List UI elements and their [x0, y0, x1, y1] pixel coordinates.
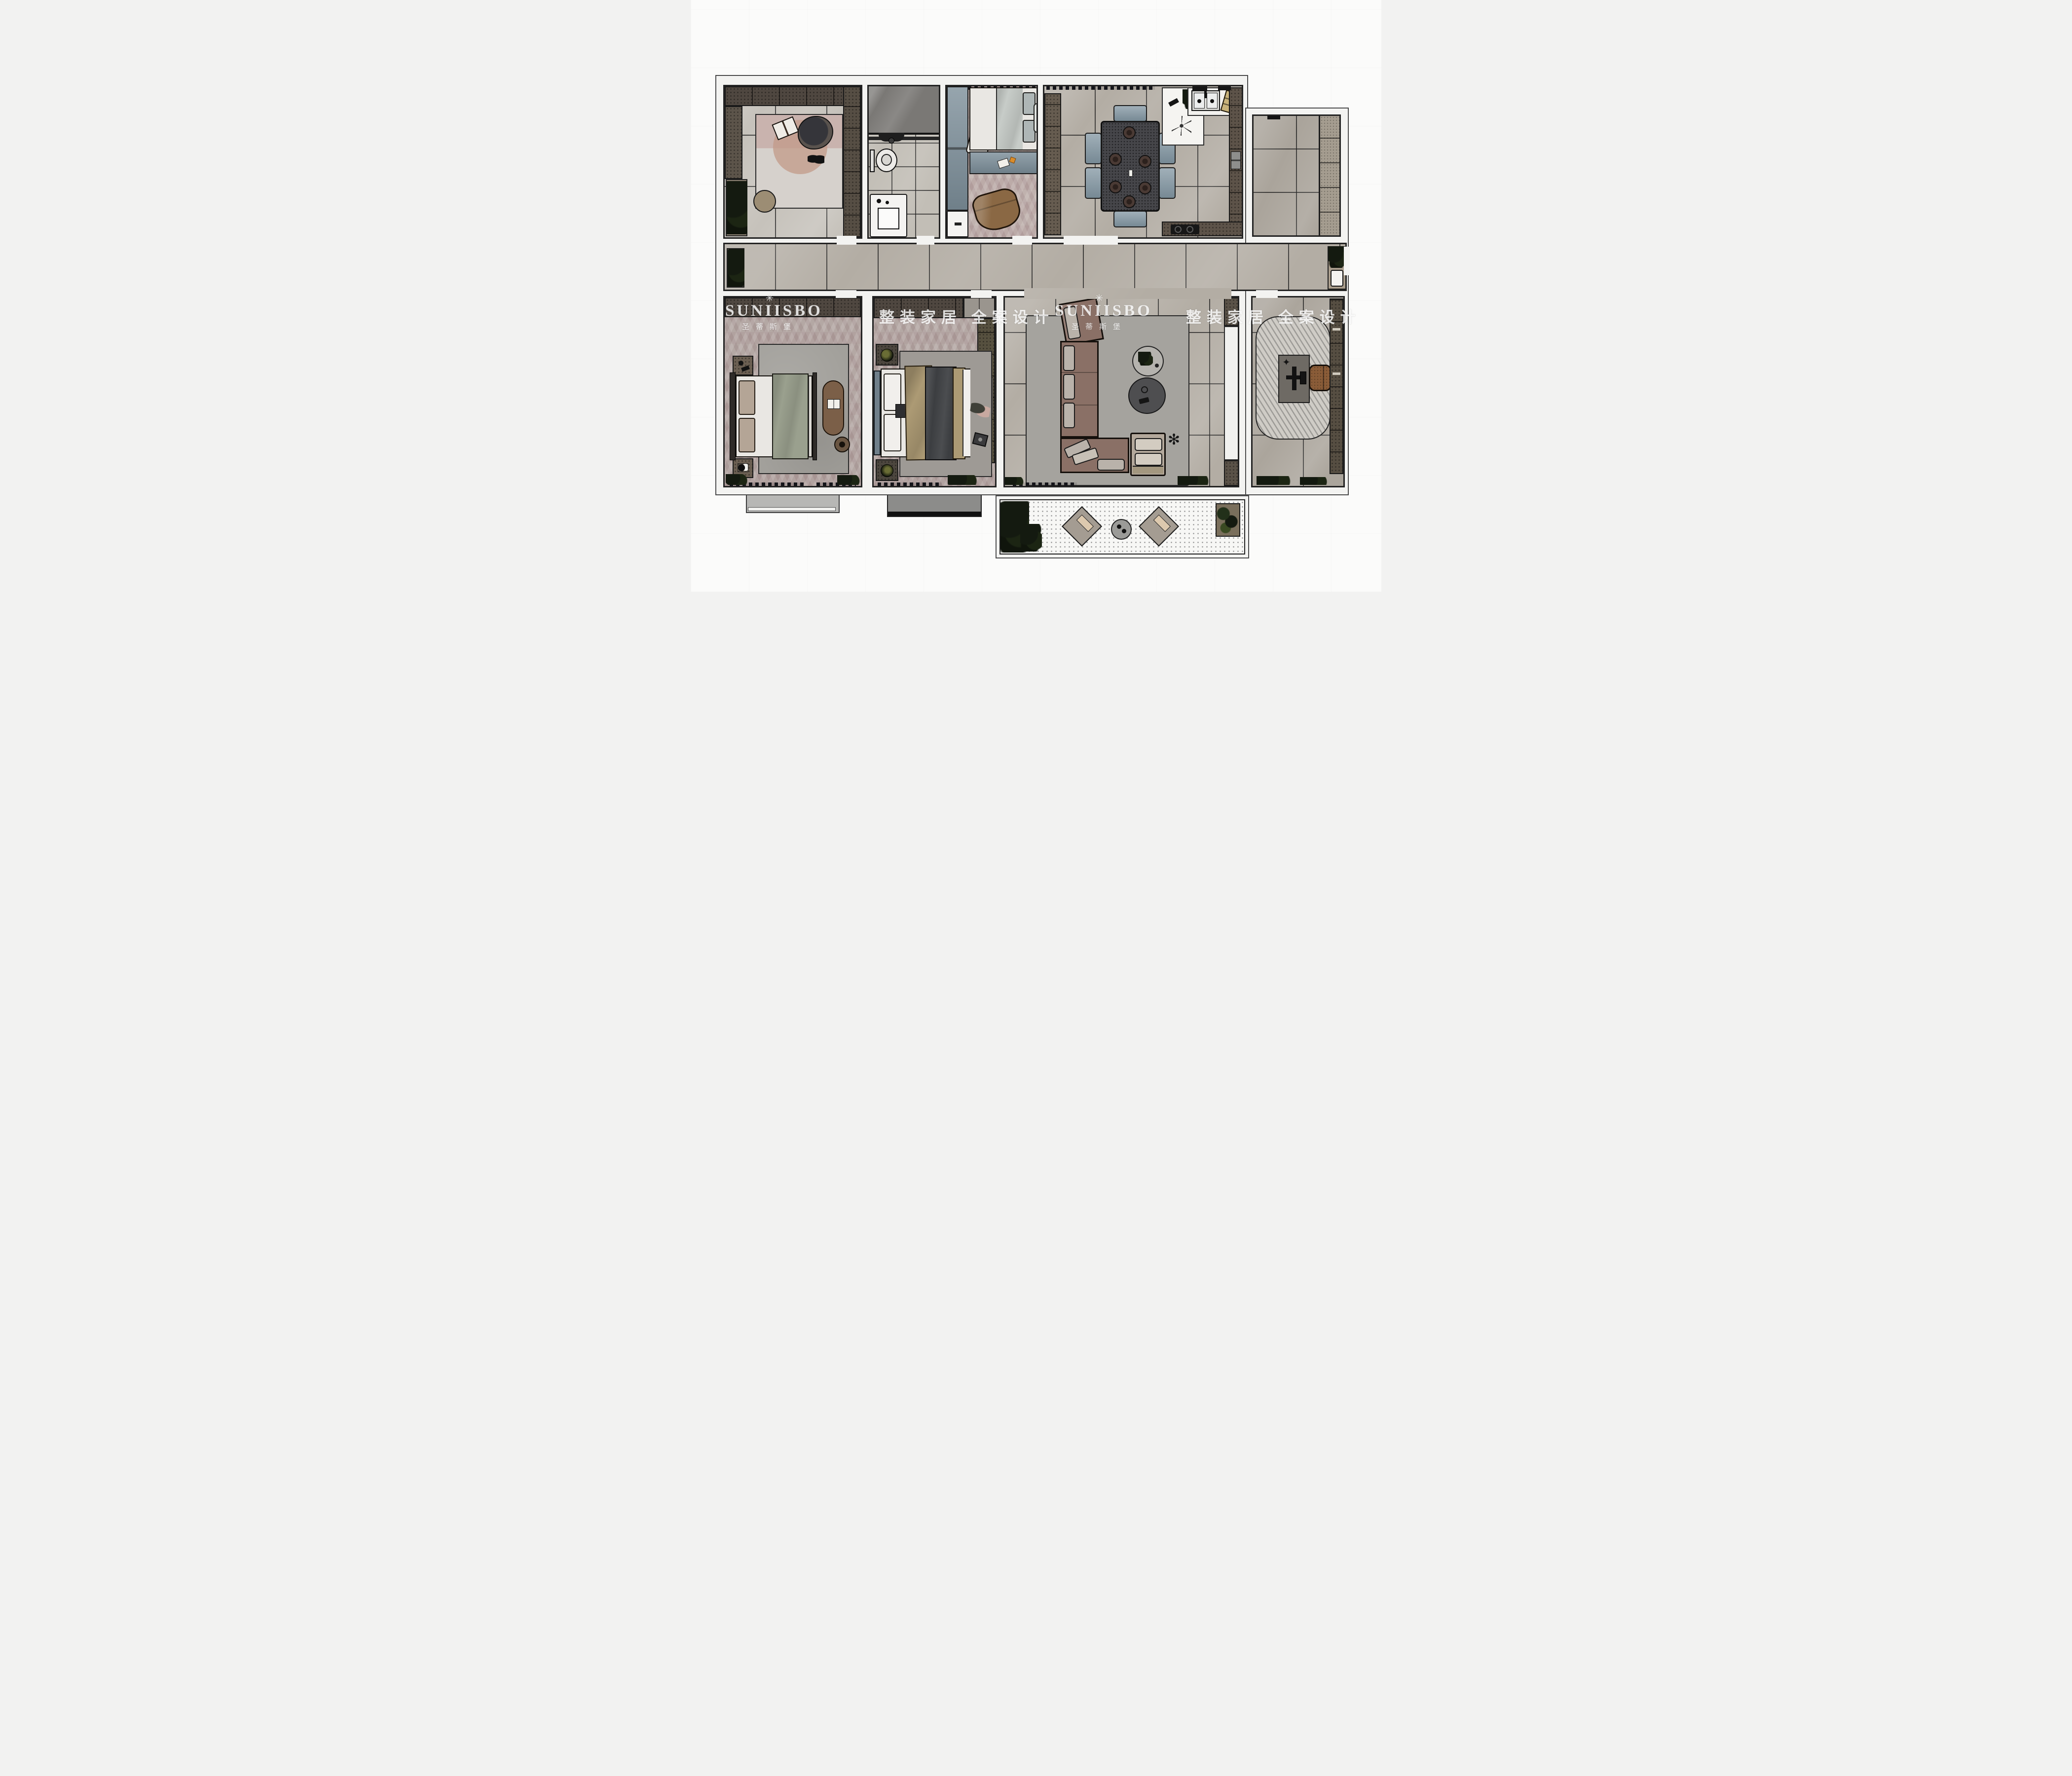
- room-dining-kitchen: [1043, 85, 1243, 239]
- dining-plate-4: [1109, 181, 1122, 193]
- bedroom-small-desk-item: [1009, 156, 1016, 163]
- corridor-plant-left-icon: [728, 249, 744, 287]
- balcony-cup-1: [1117, 524, 1121, 529]
- bedroom2-nightstand-bottom-plant: [881, 464, 893, 477]
- door-gap-study: [1256, 290, 1278, 298]
- master-nightstand-bottom-decor: [738, 463, 748, 472]
- kitchen-hob-burner-1: [1175, 226, 1182, 233]
- master-plant-left: [726, 474, 747, 485]
- room-utility-balcony: [1252, 114, 1341, 237]
- bedroom-small-beanbag: [970, 185, 1024, 235]
- bathroom-washer-led: [886, 201, 889, 204]
- living-coffee-table-light: [1132, 346, 1164, 376]
- living-sofa-chaise-cushion: [1063, 306, 1081, 340]
- dining-plate-1: [1123, 126, 1136, 139]
- master-bed-headboard: [730, 372, 736, 460]
- bedroom2-quilt-dark: [925, 367, 957, 460]
- living-sofa-chaise: [1059, 297, 1104, 346]
- master-bed-footboard: [813, 372, 817, 460]
- kitchen-hob: [1171, 224, 1199, 234]
- dining-chair-bottom: [1113, 211, 1147, 227]
- study-plant-bottom-2: [1300, 477, 1328, 485]
- kitchen-wall-mark: [1218, 86, 1231, 90]
- balcony-planter-right: [1216, 503, 1240, 537]
- balcony-side-table: [1111, 519, 1132, 540]
- dining-plate-6: [1123, 195, 1136, 208]
- bedroom2-bed: [881, 369, 970, 457]
- master-nightstand-top-decor2: [741, 366, 750, 372]
- study-bookshelf: [1330, 298, 1343, 474]
- dining-chair-right-2: [1159, 167, 1176, 199]
- door-gap-entry: [1344, 247, 1350, 275]
- master-stool: [834, 437, 850, 452]
- bedroom2-pillow-phone: [895, 404, 906, 418]
- bedroom-small-cabinet-handle: [955, 222, 962, 225]
- living-sofa-back-cushion-2: [1063, 374, 1075, 400]
- bay-window-right: [887, 495, 982, 517]
- kitchen-sink-drain-r: [1210, 99, 1214, 103]
- master-pillow-1: [739, 380, 755, 415]
- living-loveseat: [1130, 433, 1166, 476]
- living-sofa-bottom: [1060, 438, 1129, 473]
- room-master-bedroom: [723, 296, 862, 487]
- balcony-lounge-chair-2: [1139, 506, 1179, 547]
- master-bench: [822, 380, 844, 436]
- bedroom2-nightstand-top: [876, 344, 898, 366]
- master-blanket-sage: [772, 373, 809, 459]
- master-nightstand-top: [733, 356, 753, 375]
- bedroom-small-bolster: [1034, 103, 1038, 133]
- living-fan-icon: ✻: [1168, 433, 1183, 447]
- living-sofa-seat-cushion-1: [1097, 459, 1125, 471]
- cloakroom-cabinet-right: [843, 86, 861, 237]
- kitchen-decor-utensil-icon: [1172, 116, 1191, 136]
- bedroom-small-cabinet-low: [947, 211, 968, 237]
- bay-window-right-edge: [888, 512, 981, 516]
- living-table-plant-icon: [1138, 352, 1153, 366]
- living-table-tray: [1139, 397, 1149, 405]
- living-plant-bottom-left: [1004, 477, 1024, 485]
- balcony-lounge-chair-1: [1062, 506, 1102, 547]
- living-sofa-vertical: [1060, 341, 1099, 438]
- bathroom-faucet-knob: [888, 138, 894, 144]
- bathroom-toilet-bowl: [876, 148, 897, 172]
- kitchen-hob-burner-2: [1186, 226, 1193, 233]
- dining-plate-2: [1109, 153, 1122, 166]
- bedroom2-nightstand-bottom: [876, 459, 898, 481]
- room-study: ✦: [1251, 296, 1345, 487]
- bay-window-left-sill: [748, 507, 836, 511]
- door-gap-dining: [1064, 236, 1118, 245]
- master-wardrobe: [725, 297, 861, 317]
- living-sofa-back-cushion-3: [1063, 403, 1075, 428]
- study-desk-keyboard: [1300, 371, 1306, 384]
- room-living: ✻: [1003, 296, 1239, 487]
- master-bench-book: [827, 399, 840, 409]
- door-gap-master: [836, 290, 856, 298]
- study-plant-bottom: [1257, 476, 1291, 485]
- bedroom2-curtain: [878, 482, 942, 486]
- bedroom-small-wardrobe: [947, 86, 968, 211]
- bedroom-small-bed-blanket: [996, 88, 1023, 149]
- opening-living-corridor: [1024, 288, 1231, 299]
- door-gap-cloakroom: [837, 236, 856, 245]
- living-loveseat-cushion-1: [1135, 438, 1162, 451]
- bedroom2-pillow-2: [884, 414, 901, 451]
- door-gap-bathroom: [917, 236, 934, 245]
- living-loveseat-back: [1133, 466, 1163, 474]
- kitchen-oven: [1231, 151, 1241, 169]
- dining-sideboard: [1044, 93, 1061, 235]
- bedroom2-wardrobe: [874, 297, 963, 318]
- utility-door-mark: [1267, 116, 1280, 119]
- living-tv-cabinet-bottom: [1224, 460, 1239, 486]
- master-pillow-2: [739, 418, 755, 452]
- living-loveseat-cushion-2: [1135, 453, 1162, 466]
- bedroom2-plant-bottom: [948, 475, 977, 485]
- dining-plate-3: [1139, 155, 1151, 168]
- kitchen-counter-bottom: [1162, 222, 1243, 236]
- bay-window-left: [746, 495, 840, 513]
- cloakroom-plant-icon: [727, 181, 747, 234]
- dining-chair-left-2: [1085, 167, 1102, 199]
- door-gap-bedroom2: [971, 290, 992, 298]
- bedroom2-nightstand-top-plant: [881, 349, 893, 362]
- balcony-chair1-pillow: [1076, 515, 1094, 532]
- living-table-ring: [1141, 386, 1148, 393]
- room-bedroom-small: [945, 85, 1038, 239]
- master-bed: [736, 375, 813, 457]
- balcony-chair2-pillow: [1153, 515, 1171, 532]
- living-plant-bottom-right: [1178, 476, 1209, 485]
- living-coffee-table-dark: [1128, 377, 1166, 414]
- kitchen-sink: [1191, 90, 1220, 111]
- bedroom-small-bed: [969, 87, 1037, 150]
- master-plant-right: [837, 475, 860, 485]
- bathroom-shower-zone: [869, 86, 939, 135]
- master-nightstand-top-decor: [739, 361, 743, 366]
- bathroom-faucet-icon: [879, 133, 904, 142]
- bathroom-toilet-seat: [881, 154, 892, 166]
- room-corridor: [723, 243, 1347, 291]
- bathroom-washer-door: [878, 208, 899, 229]
- bedroom2-dresser: [963, 297, 995, 318]
- kitchen-sink-tap: [1204, 89, 1207, 98]
- utility-shelf-strip: [1319, 116, 1340, 236]
- study-desk: ✦: [1278, 355, 1310, 403]
- living-tv-cabinet-top: [1224, 297, 1239, 326]
- cloakroom-wardrobe-top: [725, 86, 861, 106]
- master-bed-footline: [809, 376, 812, 456]
- cloakroom-slippers-icon: [808, 152, 824, 165]
- room-balcony-bottom: [999, 499, 1245, 555]
- bathroom-washer: [870, 194, 907, 237]
- study-desk-star-doodle: ✦: [1282, 357, 1293, 368]
- dining-table: [1101, 121, 1160, 212]
- master-stool-decor: [839, 442, 845, 447]
- kitchen-tall-cabinets: [1229, 87, 1243, 236]
- bedroom2-mat-dot: [978, 437, 983, 442]
- bedroom2-headboard: [874, 370, 881, 455]
- study-bookshelf-book-2: [1332, 372, 1340, 375]
- kitchen-sink-drain-l: [1197, 99, 1201, 103]
- bedroom-small-desk-book: [997, 158, 1010, 169]
- balcony-plants-left-2: [1020, 524, 1042, 552]
- cloakroom-pouf: [753, 190, 776, 213]
- dining-chair-top: [1113, 105, 1147, 122]
- living-tv-console: [1224, 326, 1239, 460]
- door-gap-bedroom-small: [1012, 236, 1032, 245]
- living-table-dot: [1155, 364, 1159, 368]
- cloakroom-cabinet-left: [725, 106, 742, 179]
- dining-chair-left-1: [1085, 133, 1102, 164]
- room-bathroom: [867, 85, 940, 239]
- room-cloakroom: [723, 85, 862, 239]
- floorplan-canvas: ✻ ✦: [691, 0, 1381, 592]
- study-chair: [1309, 365, 1332, 391]
- bathroom-toilet-tank: [870, 149, 875, 172]
- dining-plate-5: [1139, 182, 1151, 194]
- dining-curtain: [1046, 86, 1155, 90]
- kitchen-rangehood-mark: [1192, 86, 1207, 90]
- bedroom-small-desk: [969, 151, 1037, 174]
- entry-shoe-stool: [1331, 270, 1343, 287]
- bathroom-washer-knob: [877, 199, 881, 203]
- dining-centerpiece: [1129, 170, 1133, 177]
- study-bookshelf-book-1: [1332, 328, 1340, 331]
- room-bedroom-second: [872, 296, 997, 487]
- living-sofa-back-cushion-1: [1063, 345, 1075, 371]
- kitchen-decor-item: [1168, 98, 1179, 107]
- balcony-cup-2: [1122, 529, 1126, 533]
